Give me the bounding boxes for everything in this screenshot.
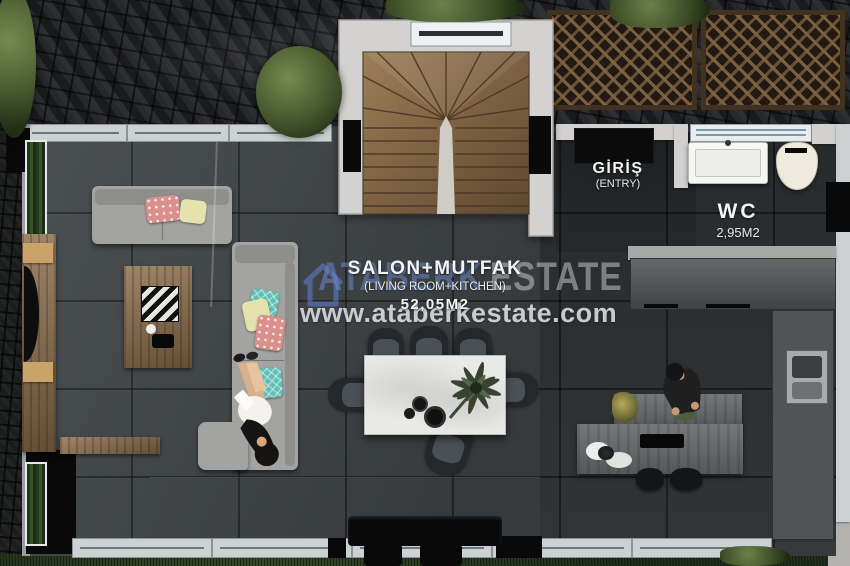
label-wc: WC 2,95M2	[690, 200, 786, 240]
outdoor-table	[348, 516, 502, 546]
table-plant	[440, 358, 504, 422]
pillow-yellow	[179, 199, 208, 225]
bar-stool	[636, 468, 664, 490]
cabinet-handle	[706, 304, 750, 308]
console-shelf-top	[23, 243, 53, 263]
entry-doormat	[574, 128, 654, 164]
bar-stool	[670, 468, 702, 490]
console-shelf-bottom	[23, 362, 53, 382]
sink-drainer	[792, 382, 822, 399]
open-door-gap	[328, 538, 346, 558]
open-door-gap	[496, 536, 542, 558]
wc-sink	[688, 142, 768, 184]
wc-area: 2,95M2	[690, 225, 786, 240]
entry-subtitle: (ENTRY)	[570, 178, 666, 190]
label-living-kitchen: SALON+MUTFAK (LIVING ROOM+KITCHEN) 52,05…	[335, 258, 535, 313]
island-plant	[612, 392, 638, 422]
sink-basin	[792, 356, 822, 378]
table-bowl	[404, 408, 415, 419]
wall-stub-wc	[674, 124, 688, 188]
planter-upper-left	[25, 140, 47, 242]
label-entry: GİRİŞ (ENTRY)	[570, 160, 666, 190]
window-segment	[25, 125, 126, 141]
trellis-panel-right	[701, 10, 845, 110]
outdoor-chair	[420, 544, 462, 566]
kitchen-counter-top	[630, 258, 836, 310]
person-lying-sofa	[198, 346, 304, 466]
window-segment	[128, 125, 229, 141]
tree-top-center	[256, 46, 342, 138]
glass-reflection	[150, 477, 540, 478]
living-kitchen-subtitle: (LIVING ROOM+KITCHEN)	[335, 281, 535, 293]
person-standing-kitchen	[652, 358, 710, 422]
pillow-coral	[145, 194, 182, 223]
living-kitchen-title: SALON+MUTFAK	[335, 258, 535, 280]
outdoor-chair	[364, 544, 402, 566]
coffee-table-item	[152, 334, 174, 348]
living-kitchen-area: 52,05M2	[335, 296, 535, 313]
planter-lower-left	[25, 462, 47, 546]
sectional-armrest	[235, 245, 295, 263]
kitchen-counter-right	[772, 310, 834, 540]
window-segment	[73, 539, 211, 557]
window-entry-top	[690, 124, 812, 142]
entry-title: GİRİŞ	[570, 160, 666, 178]
staircase	[333, 16, 559, 238]
kitchen-sink	[786, 350, 828, 404]
cabinet-handle	[644, 304, 678, 308]
niche-right-wall	[826, 182, 850, 232]
toilet-tank-line	[785, 148, 807, 153]
coffee-table-item	[146, 324, 156, 334]
coffee-table-tray	[141, 286, 179, 322]
floorplan-scene: ATABERKESTATE www.ataberkestate.com SALO…	[0, 0, 850, 566]
wc-title: WC	[690, 200, 786, 224]
media-bench	[60, 437, 160, 454]
island-tray	[640, 434, 684, 448]
table-bowl	[424, 406, 446, 428]
greenery-bottom	[720, 546, 790, 566]
island-flowers	[598, 446, 614, 460]
wc-sink-basin	[695, 149, 761, 177]
wc-faucet	[725, 140, 731, 146]
